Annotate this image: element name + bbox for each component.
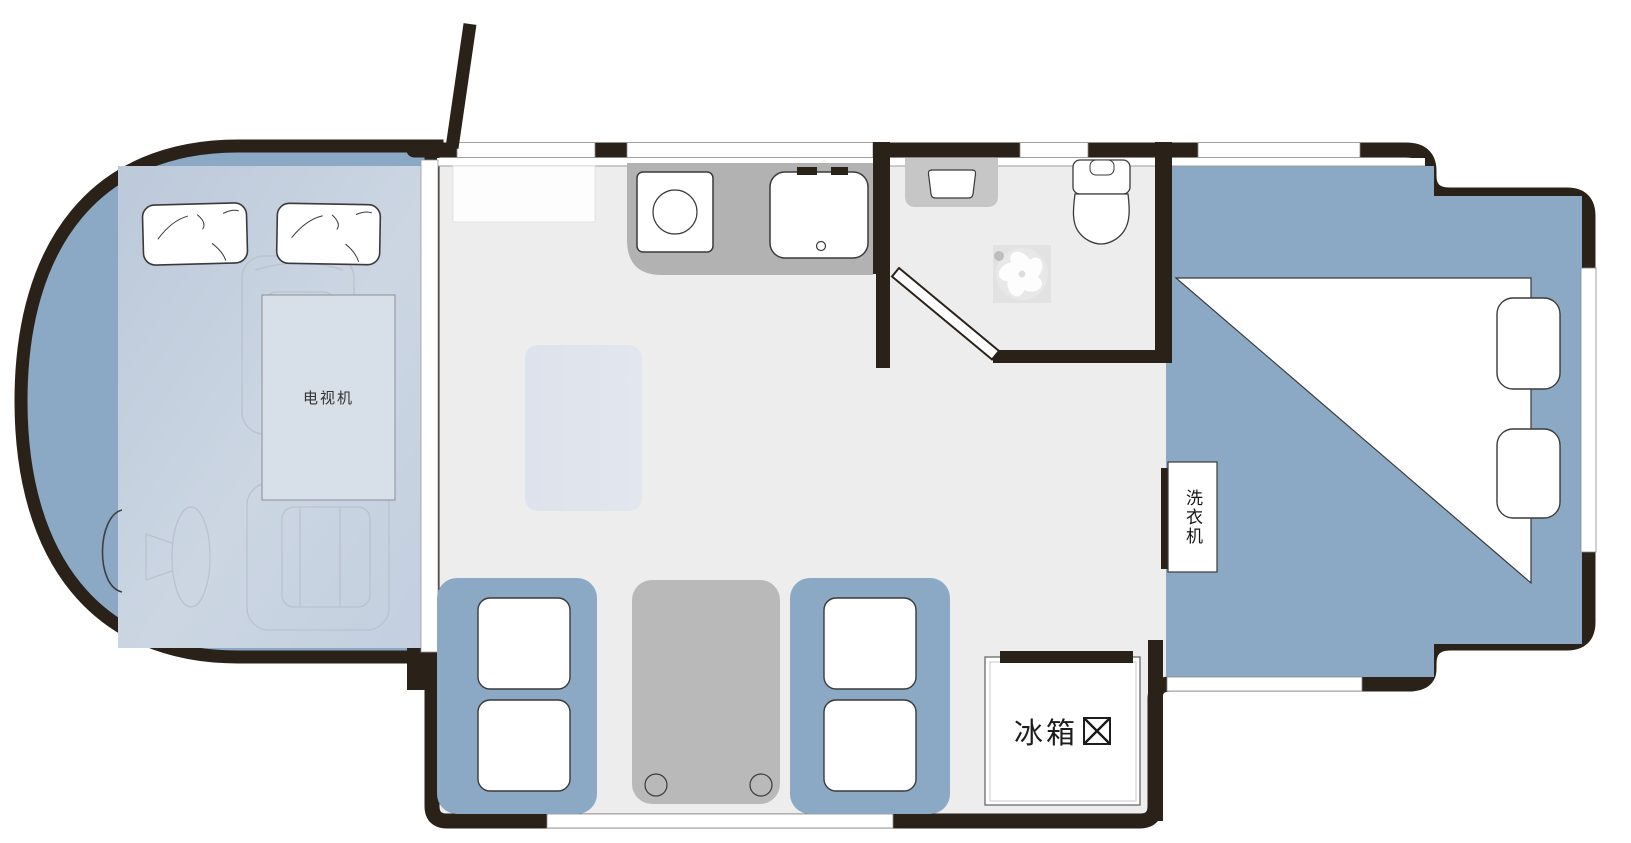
vanity-basin <box>928 170 975 198</box>
bathroom-wall-bottom <box>993 350 1172 363</box>
seat-cushion <box>478 700 570 791</box>
overhead-cabinet <box>453 166 595 222</box>
faucet-mark-1 <box>797 167 817 175</box>
seat-cushion <box>478 598 570 689</box>
bed-pillow <box>1497 298 1560 389</box>
dinette-table <box>632 580 780 804</box>
dinette <box>437 578 950 814</box>
faucet-mark-2 <box>831 167 848 175</box>
cab-pillow-right <box>276 203 380 265</box>
bathroom-wall-right <box>1155 142 1172 363</box>
bedroom-bottom-window <box>1167 677 1362 691</box>
vent-fan <box>993 245 1051 303</box>
bedroom-top-window <box>1198 143 1360 158</box>
stove-burner <box>653 190 697 234</box>
kitchen-window-1 <box>457 143 595 158</box>
cab-partition <box>421 160 438 652</box>
bedroom-right-window <box>1581 268 1596 552</box>
refrigerator-label-text: 冰箱 <box>1014 710 1078 752</box>
dinette-window <box>547 814 893 828</box>
floor-plan-drawing <box>0 0 1631 843</box>
cab-pillow-left <box>142 203 248 266</box>
bed-pillow <box>1497 429 1560 518</box>
refrigerator-label: 冰箱 <box>985 657 1140 805</box>
seat-cushion <box>824 598 916 689</box>
crossed-box-icon <box>1083 717 1111 745</box>
seat-cushion <box>824 700 916 791</box>
bedroom-wall-left-lower <box>1148 640 1163 821</box>
bathroom-wall-left <box>873 142 890 274</box>
floor-rug <box>525 345 642 511</box>
kitchen-window-2 <box>627 143 873 158</box>
washing-machine-label: 洗衣机 <box>1168 462 1217 572</box>
sink-drain <box>817 242 826 251</box>
bathroom-wall-lower-left <box>876 268 890 368</box>
rv-floor-plan: 电视机 洗衣机 冰箱 <box>0 0 1631 843</box>
entry-door-leaf <box>452 24 470 148</box>
bathroom-window <box>1020 143 1088 158</box>
tv-label: 电视机 <box>262 295 395 500</box>
toilet <box>1073 160 1130 244</box>
